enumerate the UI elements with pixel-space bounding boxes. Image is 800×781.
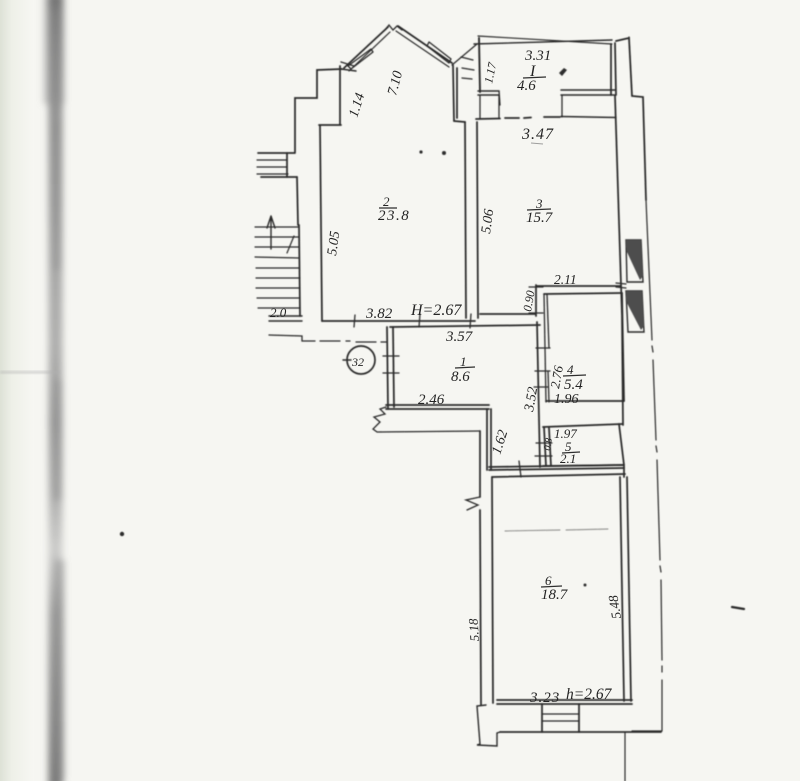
svg-text:3: 3: [535, 196, 543, 211]
svg-text:h=2.67: h=2.67: [566, 686, 613, 703]
svg-text:6: 6: [545, 573, 552, 588]
svg-text:5.18: 5.18: [465, 618, 482, 642]
svg-text:2.0: 2.0: [270, 305, 287, 320]
svg-text:3.31: 3.31: [524, 48, 551, 64]
svg-text:4.6: 4.6: [517, 78, 536, 94]
svg-text:2.11: 2.11: [554, 272, 577, 287]
svg-text:2: 2: [383, 194, 390, 209]
svg-text:15.7: 15.7: [526, 210, 554, 226]
svg-text:1: 1: [460, 354, 467, 369]
svg-text:3.57: 3.57: [445, 329, 474, 345]
svg-text:3.47: 3.47: [521, 126, 554, 143]
svg-text:32: 32: [351, 355, 364, 369]
svg-text:5.4: 5.4: [564, 377, 583, 393]
svg-text:8.6: 8.6: [451, 369, 470, 385]
svg-text:1.96: 1.96: [554, 392, 579, 407]
svg-text:0.8: 0.8: [542, 437, 555, 451]
svg-text:23.8: 23.8: [378, 208, 410, 224]
svg-text:H=2.67: H=2.67: [410, 302, 462, 319]
svg-text:2.46: 2.46: [418, 392, 445, 408]
svg-text:2.1: 2.1: [560, 451, 576, 466]
svg-text:3.82: 3.82: [365, 306, 393, 322]
svg-text:3.23: 3.23: [529, 690, 560, 706]
svg-text:18.7: 18.7: [541, 587, 569, 603]
svg-text:4: 4: [567, 362, 574, 377]
